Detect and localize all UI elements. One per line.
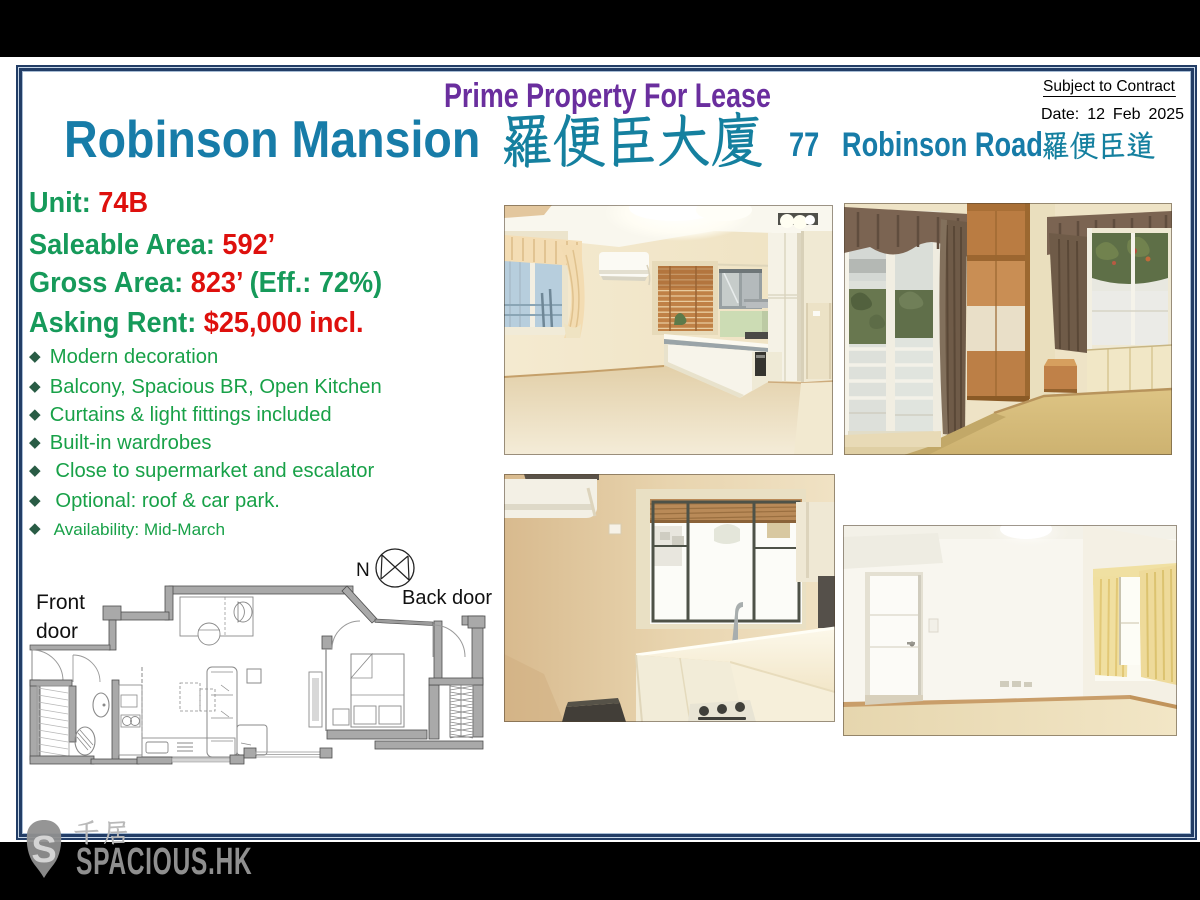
- svg-text:S: S: [31, 829, 56, 871]
- svg-text:Front: Front: [36, 591, 85, 614]
- svg-text:door: door: [36, 620, 78, 643]
- svg-text:N: N: [356, 560, 370, 581]
- svg-text:Back door: Back door: [402, 587, 492, 609]
